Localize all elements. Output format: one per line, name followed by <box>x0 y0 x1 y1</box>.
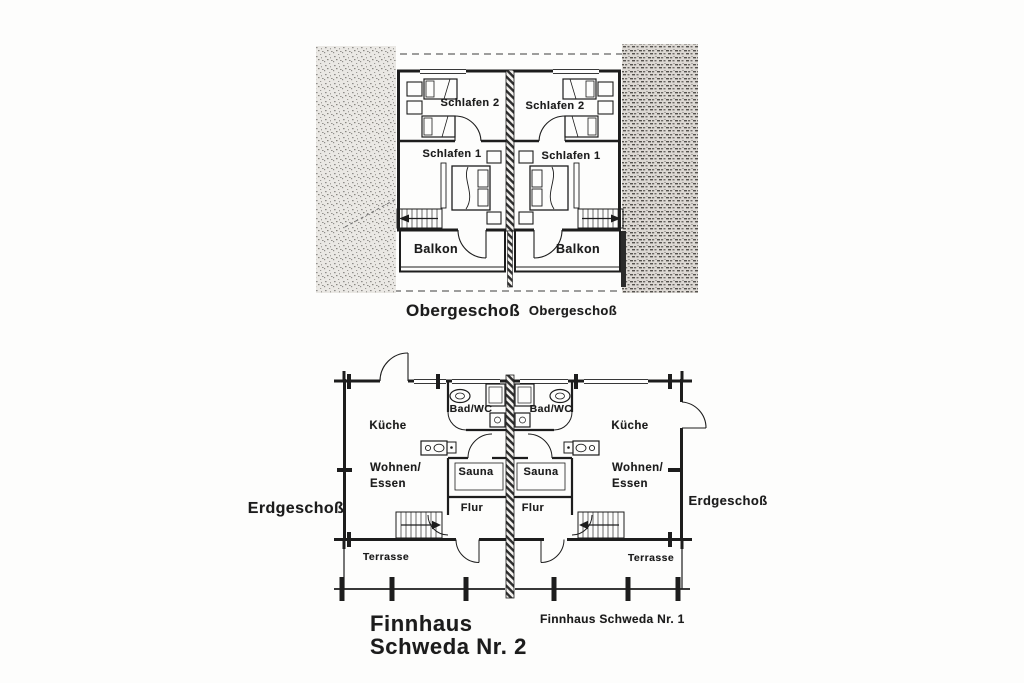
door-arc <box>539 116 565 141</box>
party-wall-upper <box>506 70 514 231</box>
room-label-schlafen1-right: Schlafen 1 <box>541 151 600 162</box>
room-label-wohnen-essen-right: Wohnen/ Essen <box>612 460 663 492</box>
room-label-terrasse-right: Terrasse <box>628 553 674 564</box>
double-bed <box>452 166 490 210</box>
door-arc <box>380 353 408 381</box>
room-label-balkon-left: Balkon <box>414 243 458 256</box>
party-wall-ground <box>506 375 514 598</box>
room-label-schlafen1-left: Schlafen 1 <box>422 149 481 160</box>
stair-direction-arrow <box>399 215 409 223</box>
caption-erdgeschoss-left: Erdgeschoß <box>248 501 344 517</box>
title-finnhaus-schweda-nr1: Finnhaus Schweda Nr. 1 <box>540 613 685 625</box>
title-finnhaus-schweda-nr2: Finnhaus Schweda Nr. 2 <box>370 612 527 658</box>
door-arc <box>541 540 564 563</box>
double-bed <box>530 166 568 210</box>
scanned-floor-plan-page: Schlafen 2 Schlafen 2 Schlafen 1 Schlafe… <box>0 0 1024 683</box>
room-label-schlafen2-right: Schlafen 2 <box>525 101 584 112</box>
floor-plan-drawing <box>0 0 1024 683</box>
essen-line: Essen <box>370 476 421 492</box>
door-arc <box>528 434 552 458</box>
room-label-sauna-left: Sauna <box>458 467 493 478</box>
room-label-badwc-right: Bad/WC <box>530 404 573 415</box>
wohnen-line: Wohnen/ <box>370 460 421 476</box>
room-label-badwc-left: Bad/WC <box>450 404 493 415</box>
ground-stairs-left <box>396 512 442 538</box>
door-arc <box>682 402 706 428</box>
stair-direction-arrow <box>432 521 441 529</box>
essen-line: Essen <box>612 476 663 492</box>
upper-floor-plan <box>316 44 698 293</box>
room-label-wohnen-essen-left: Wohnen/ Essen <box>370 460 421 492</box>
door-arc <box>455 116 481 141</box>
ground-stairs-right <box>578 512 624 538</box>
sink <box>434 444 444 452</box>
toilet <box>450 390 470 403</box>
wardrobe <box>441 163 446 208</box>
room-label-sauna-right: Sauna <box>523 467 558 478</box>
entrance-doors <box>380 353 706 428</box>
wohnen-line: Wohnen/ <box>612 460 663 476</box>
room-label-schlafen2-left: Schlafen 2 <box>440 98 499 109</box>
room-label-kueche-left: Küche <box>369 421 406 433</box>
terrain-texture-left <box>316 46 396 293</box>
room-label-terrasse-left: Terrasse <box>363 552 409 563</box>
kitchen-counter-right <box>564 441 599 455</box>
room-label-kueche-right: Küche <box>611 421 648 433</box>
title-line-1: Finnhaus <box>370 612 527 635</box>
upper-stairs-left <box>397 209 442 228</box>
wardrobe <box>574 163 579 208</box>
stair-direction-arrow <box>579 521 588 529</box>
balconies <box>400 230 626 287</box>
room-label-balkon-right: Balkon <box>556 243 600 256</box>
kitchen-counter-left <box>421 441 456 455</box>
room-label-flur-right: Flur <box>522 503 544 514</box>
toilet <box>550 390 570 403</box>
caption-obergeschoss-right: Obergeschoß <box>529 304 617 317</box>
terrain-texture-right <box>622 44 698 293</box>
door-arc <box>458 230 486 258</box>
sink <box>576 444 586 452</box>
door-arc <box>468 434 492 458</box>
washbasin <box>515 413 530 427</box>
room-label-flur-left: Flur <box>461 503 483 514</box>
washbasin <box>490 413 505 427</box>
upper-stairs-right <box>578 209 623 228</box>
title-line-2: Schweda Nr. 2 <box>370 635 527 658</box>
caption-erdgeschoss-right: Erdgeschoß <box>688 494 767 507</box>
door-arc <box>456 540 479 563</box>
caption-obergeschoss-left: Obergeschoß <box>406 302 520 319</box>
